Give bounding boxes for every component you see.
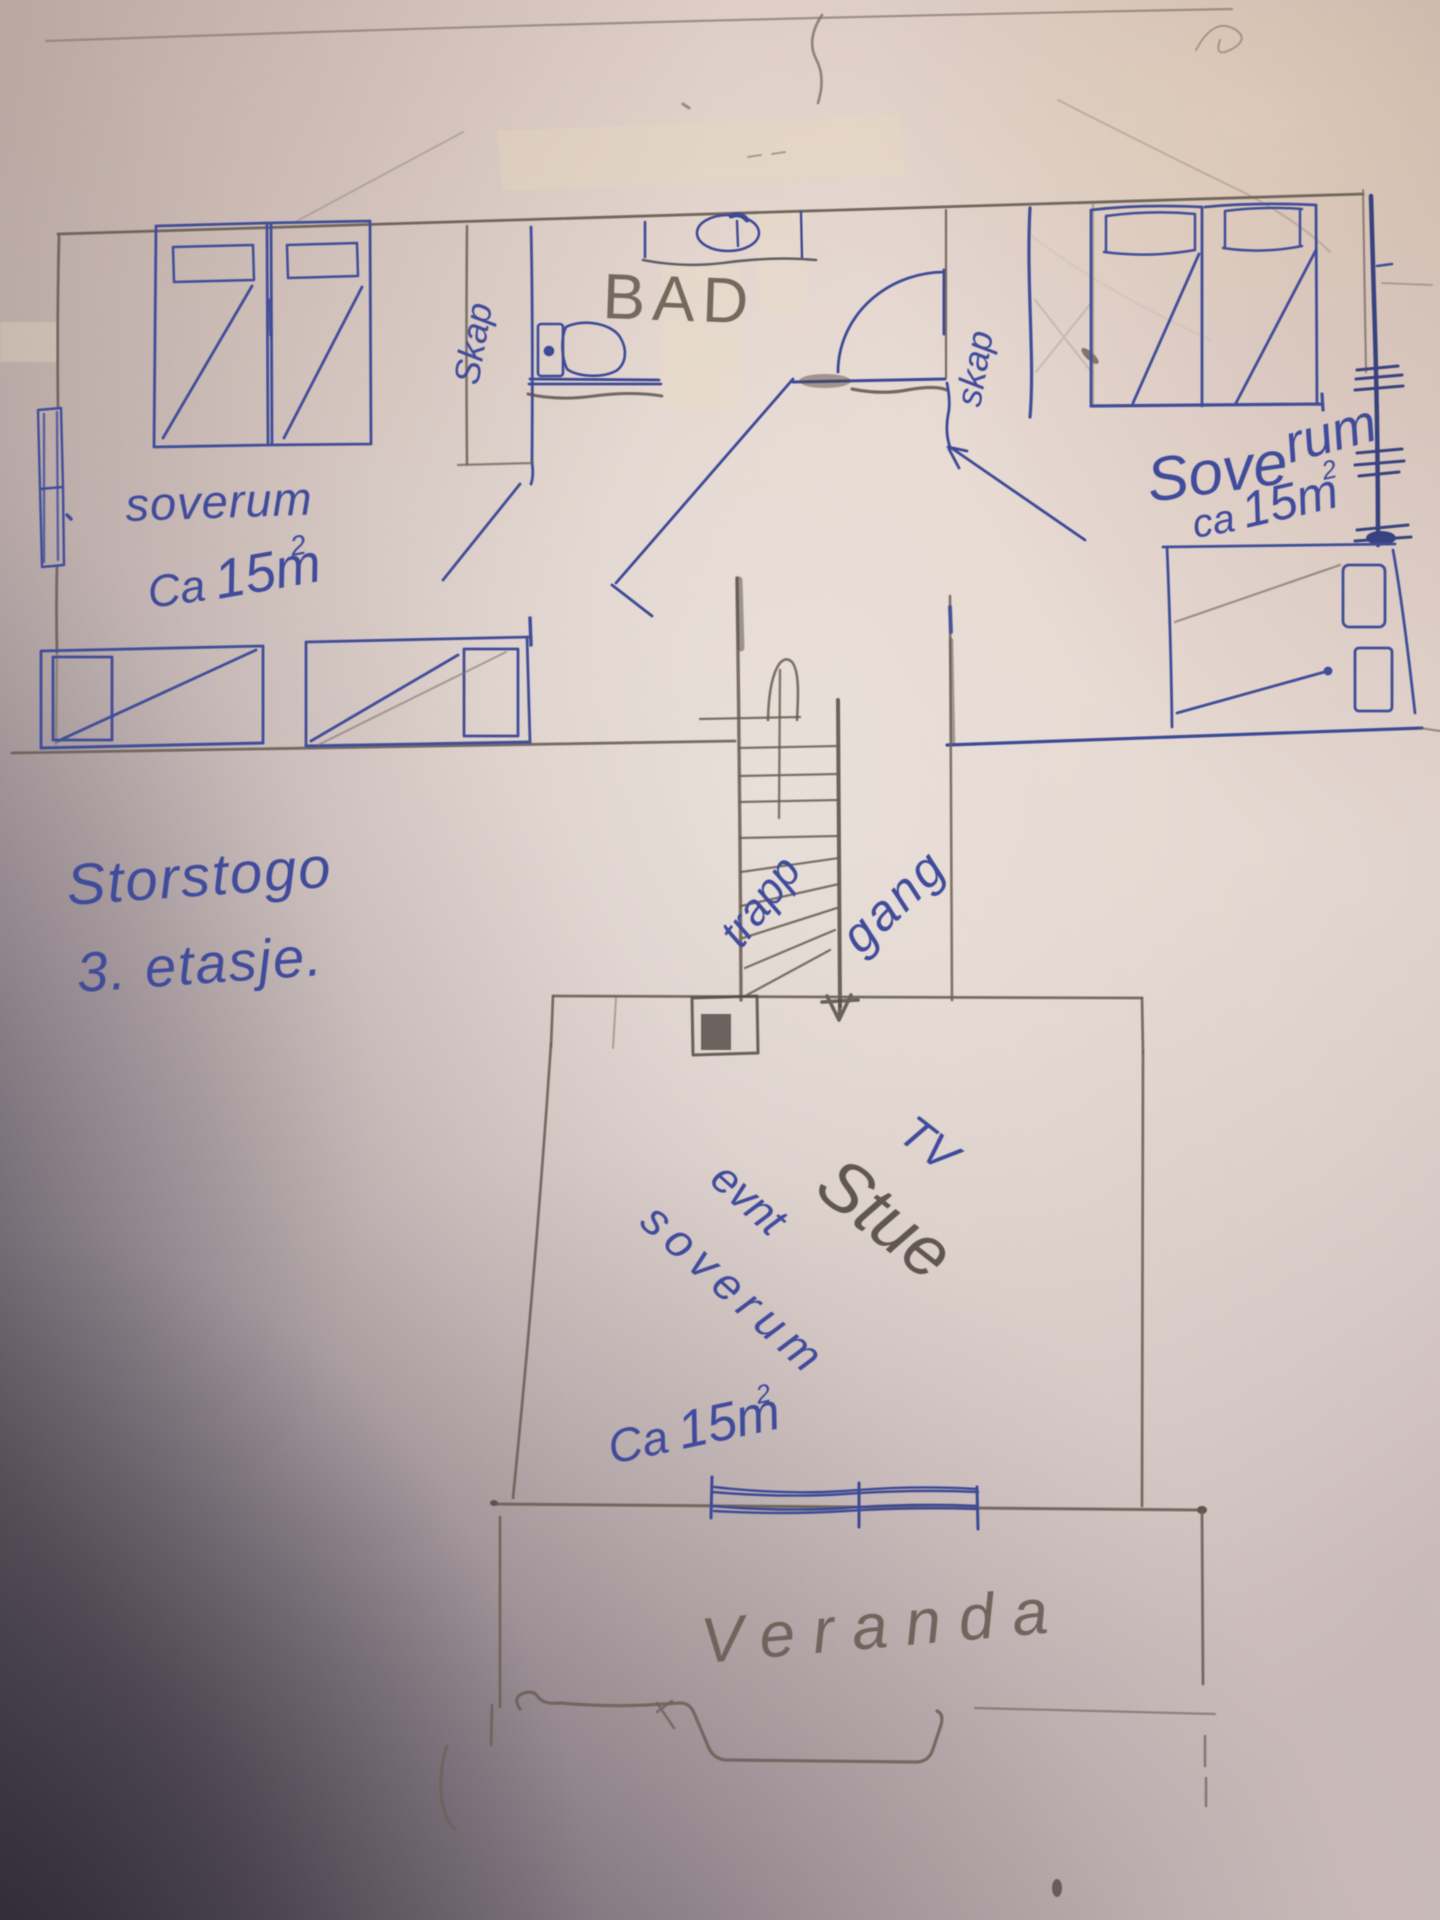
svg-text:ca: ca [1189,496,1238,547]
svg-text:Ca: Ca [144,559,208,618]
svg-text:soverum: soverum [124,471,313,531]
svg-text:BAD: BAD [602,260,757,337]
